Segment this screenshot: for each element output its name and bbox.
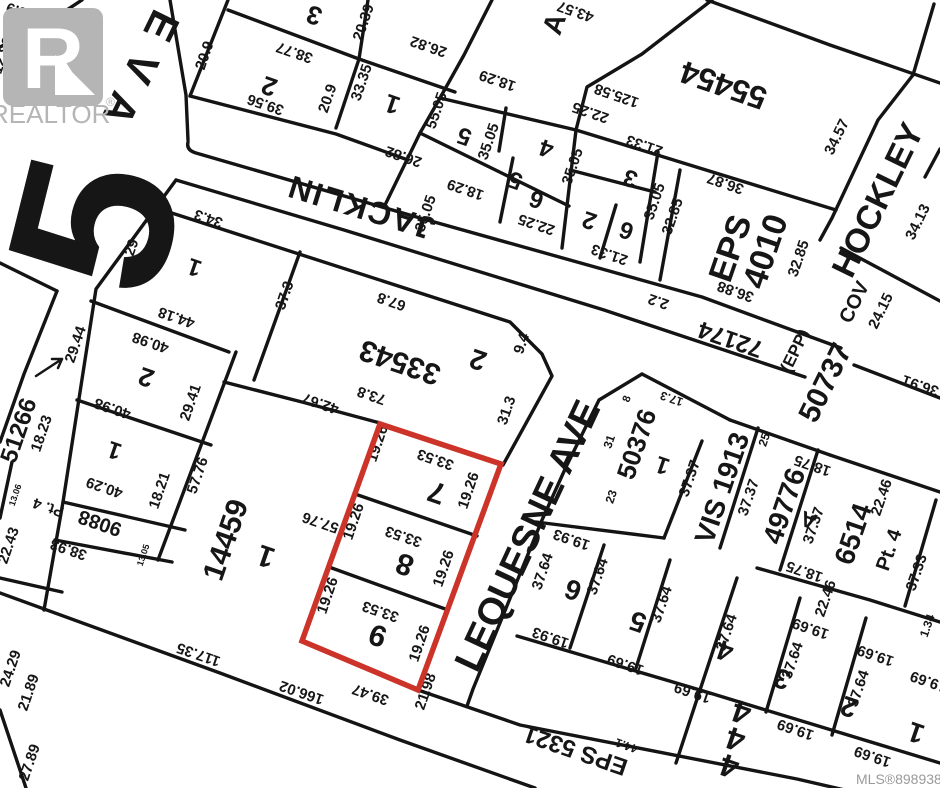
svg-text:®: ® xyxy=(106,95,115,109)
svg-text:MLS®898938: MLS®898938 xyxy=(856,771,940,787)
svg-text:REALTOR: REALTOR xyxy=(0,99,110,129)
